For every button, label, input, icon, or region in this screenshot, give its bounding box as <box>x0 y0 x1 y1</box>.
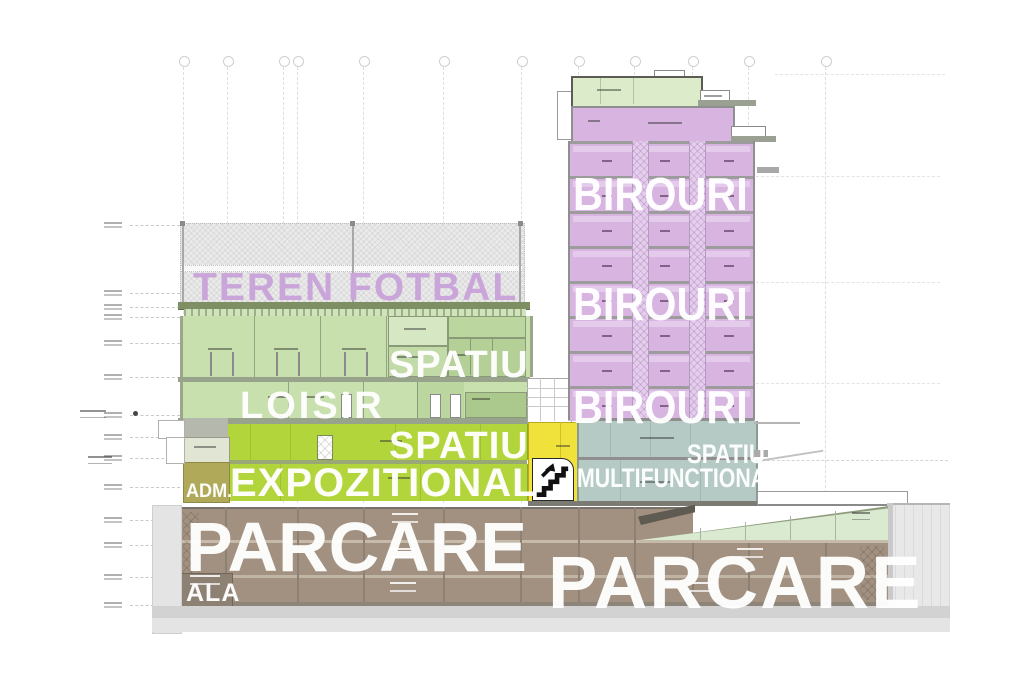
ramp-post <box>835 511 836 540</box>
grid-bubble <box>293 56 304 67</box>
glazing-bar <box>527 397 570 398</box>
zone-label-offices-1: BIROURI <box>573 171 748 217</box>
room-tag <box>472 398 490 400</box>
door <box>210 352 234 376</box>
zone-label-parking-right: PARCARE <box>548 546 922 620</box>
level-line <box>757 460 948 461</box>
room-tag <box>194 446 216 448</box>
level-marker <box>130 487 180 488</box>
canopy <box>754 422 800 424</box>
zone-label-multifunctional-2: MULTIFUNCTIONAL <box>577 465 779 492</box>
zone-label-roof-field: TEREN FOTBAL <box>193 268 518 307</box>
grid-bubble <box>439 56 450 67</box>
section-drawing: TEREN FOTBAL BIROURI BIROURI BIROURI SPA… <box>0 0 1024 683</box>
room-tag <box>342 348 366 350</box>
room-tag <box>274 348 298 350</box>
ramp-post <box>790 516 791 540</box>
zone-label-offices-3: BIROURI <box>573 384 748 430</box>
grid-bubble <box>279 56 290 67</box>
room <box>465 392 527 418</box>
partition <box>254 316 255 377</box>
zone-label-offices-2: BIROURI <box>573 281 748 327</box>
room-tag <box>597 89 621 91</box>
zone-label-parking-left: PARCARE <box>186 512 527 582</box>
partition <box>633 78 634 104</box>
door <box>344 352 368 376</box>
partition <box>290 424 291 460</box>
partition <box>320 316 321 377</box>
glazing-bar <box>554 378 555 421</box>
level-marker <box>130 293 180 294</box>
grid-bubble <box>574 56 585 67</box>
ramp-post <box>700 528 701 540</box>
tower-wall <box>753 141 755 420</box>
room-tag <box>704 95 722 97</box>
zone-label-exhibition-2: EXPOZITIONAL <box>230 463 538 503</box>
door <box>450 394 461 418</box>
annex-slab <box>183 418 228 437</box>
zone-label-space-upper: SPATIU <box>389 346 529 384</box>
post-cap <box>180 221 185 226</box>
tower-penthouse <box>571 76 703 110</box>
net-post <box>519 223 521 302</box>
level-line <box>756 176 940 177</box>
tower-floor <box>568 246 755 281</box>
datum-dot <box>133 411 138 416</box>
grid-line <box>825 67 826 503</box>
level-line <box>775 74 945 75</box>
post-cap <box>518 221 523 226</box>
canopy-slab <box>757 167 779 173</box>
glazing-bar <box>527 388 570 389</box>
tower-floor-conference <box>571 106 735 145</box>
braced-column <box>317 435 333 460</box>
glazing-bar <box>527 406 570 407</box>
zone-label-admin: ADM. <box>186 482 232 501</box>
partition <box>250 424 251 460</box>
level-marker <box>130 317 180 318</box>
net-post <box>182 223 184 302</box>
grid-bubble <box>179 56 190 67</box>
room-tag <box>208 348 232 350</box>
tower-wall <box>568 141 570 420</box>
door <box>430 394 441 418</box>
grid-bubble <box>359 56 370 67</box>
level-marker <box>130 343 180 344</box>
level-line <box>756 383 940 384</box>
room-tag <box>588 120 600 122</box>
grid-bubble <box>688 56 699 67</box>
post-cap <box>350 221 355 226</box>
ramp-parapet <box>757 491 908 506</box>
partition <box>386 316 387 377</box>
ground-level-note <box>80 410 106 418</box>
room-tag <box>640 437 674 439</box>
level-marker <box>130 377 180 378</box>
ground-floor-slab <box>528 501 760 506</box>
partition <box>600 78 601 104</box>
ramp-tag <box>852 512 870 520</box>
grid-bubble <box>821 56 832 67</box>
room <box>448 316 526 338</box>
zone-label-leisure: LOISIR <box>240 387 385 425</box>
grid-bubble <box>744 56 755 67</box>
level-line <box>756 282 940 283</box>
door <box>276 352 300 376</box>
grid-bubble <box>630 56 641 67</box>
room <box>388 316 448 346</box>
grid-bubble <box>223 56 234 67</box>
grid-bubble <box>517 56 528 67</box>
ramp-post <box>745 522 746 540</box>
stairs-up-icon <box>532 458 574 501</box>
level-marker <box>130 307 180 308</box>
zone-label-hall: ALA <box>186 581 240 606</box>
level-marker <box>130 225 180 226</box>
glazing-bar <box>540 378 541 421</box>
annex-room <box>183 437 230 464</box>
zone-label-exhibition-1: SPATIU <box>389 427 529 465</box>
ground-level-note <box>88 456 112 464</box>
ceiling-joists <box>184 309 526 316</box>
room-tag <box>648 122 682 124</box>
parapet-step <box>166 437 185 464</box>
level-marker <box>130 415 180 416</box>
room-tag <box>404 328 426 330</box>
room-tag <box>556 445 570 447</box>
atrium-glazing <box>527 378 572 423</box>
